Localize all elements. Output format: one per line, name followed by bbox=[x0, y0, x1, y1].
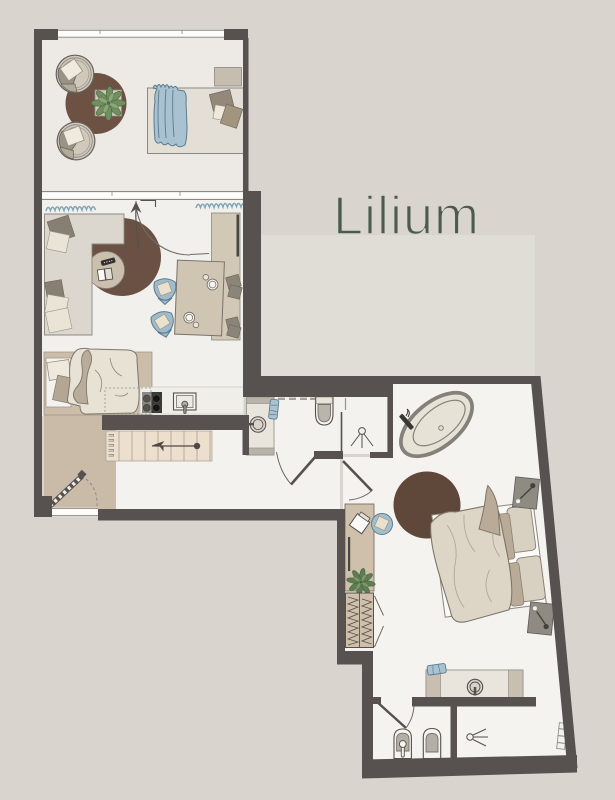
svg-text:Lilium: Lilium bbox=[333, 186, 480, 246]
